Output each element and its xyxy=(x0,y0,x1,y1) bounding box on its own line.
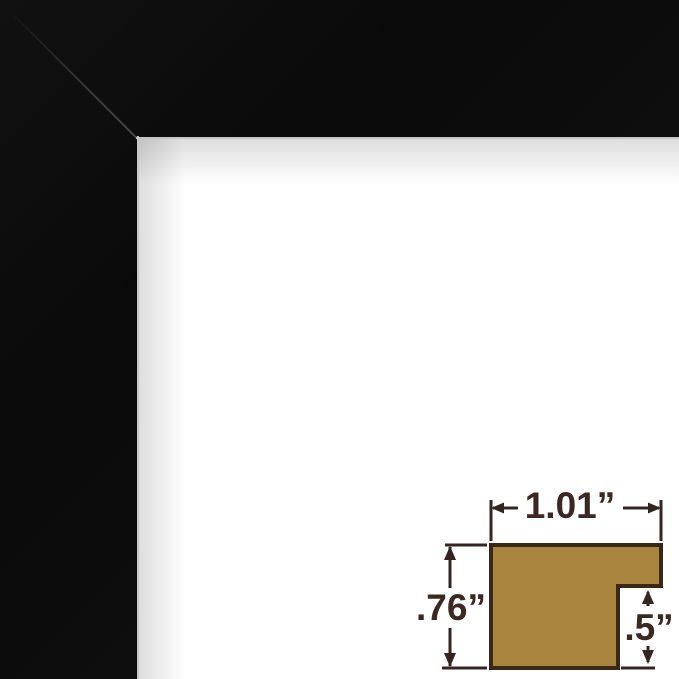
rabbet-arrowhead-bottom xyxy=(642,650,654,664)
product-image: 1.01” .76” .5” xyxy=(0,0,679,679)
rabbet-dimension-label: .5” xyxy=(624,607,673,648)
width-dimension-label: 1.01” xyxy=(525,485,616,526)
frame-cast-shadow-vertical xyxy=(139,139,185,679)
rabbet-dimension: .5” xyxy=(621,590,674,668)
rabbet-arrowhead-top xyxy=(642,590,654,604)
height-dimension-label: .76” xyxy=(416,587,486,628)
height-arrowhead-bottom xyxy=(444,653,456,667)
height-arrowhead-top xyxy=(444,546,456,560)
frame-moulding-left xyxy=(0,0,138,679)
dimension-diagram: 1.01” .76” .5” xyxy=(405,480,679,679)
frame-cast-shadow-horizontal xyxy=(139,139,679,185)
width-dimension: 1.01” xyxy=(491,485,661,541)
width-arrowhead-right xyxy=(648,503,661,514)
height-dimension: .76” xyxy=(416,545,487,668)
width-arrowhead-left xyxy=(491,503,504,514)
